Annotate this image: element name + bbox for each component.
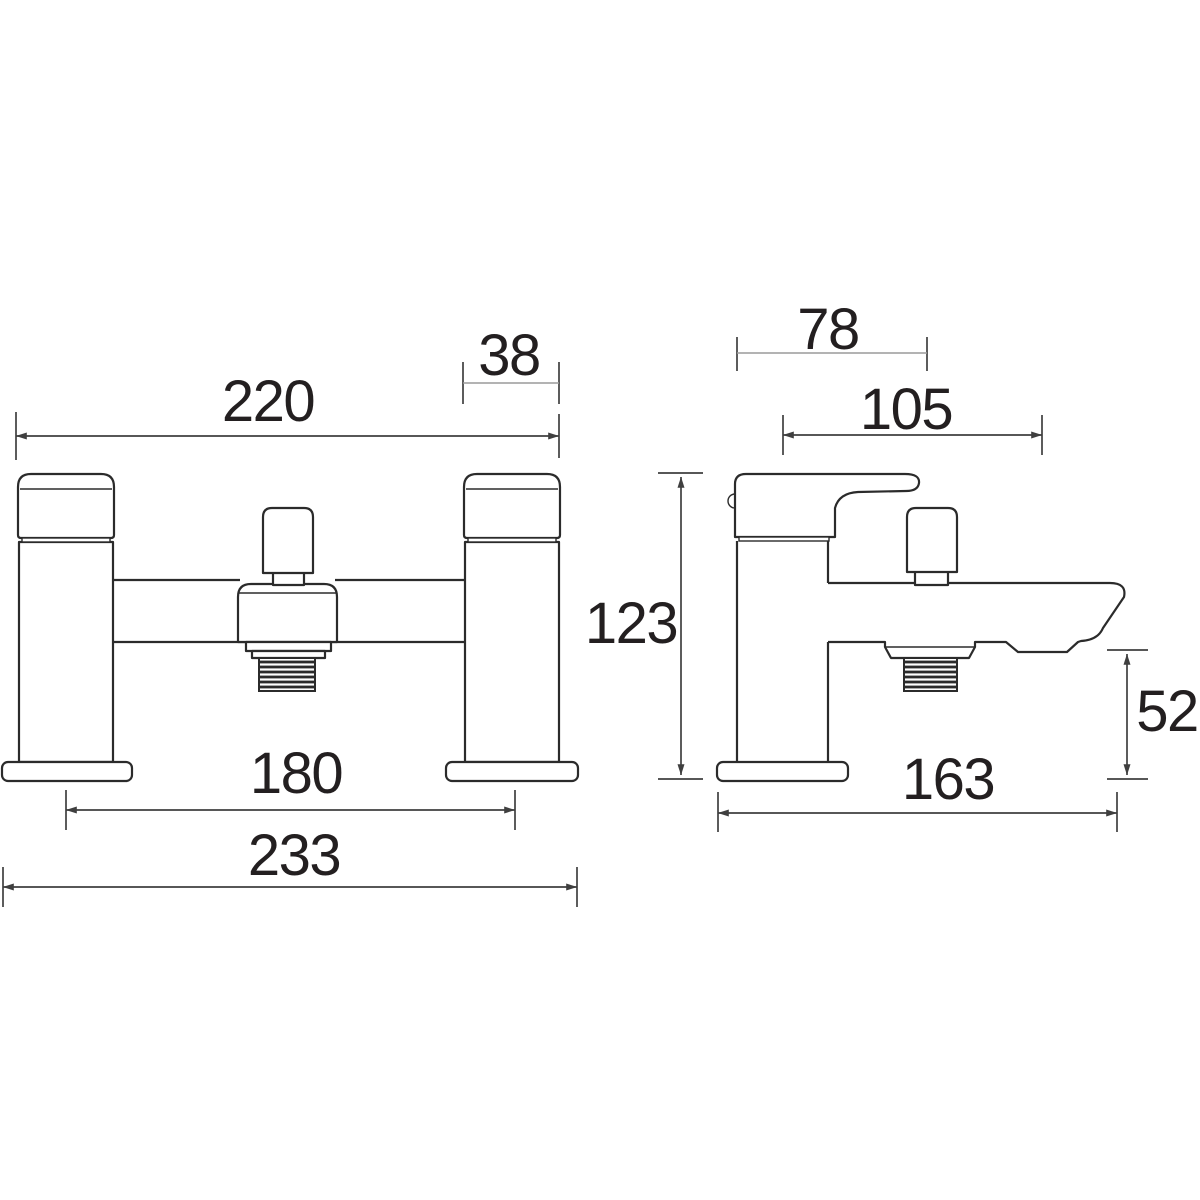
dim-label-handle-width: 38 bbox=[478, 323, 540, 388]
side-base-flange bbox=[717, 762, 848, 781]
dim-label-outlet-to-base: 52 bbox=[1136, 679, 1198, 744]
side-handle-lip bbox=[739, 537, 829, 541]
dimension-drawing: 220 38 180 233 78 105 123 bbox=[0, 0, 1200, 1200]
side-threaded-outlet bbox=[904, 658, 957, 691]
front-right-pillar bbox=[465, 542, 559, 762]
dim-label-inlet-centres: 180 bbox=[250, 741, 342, 806]
front-left-handle-lip bbox=[22, 538, 110, 542]
front-right-handle bbox=[464, 474, 560, 538]
side-dimensions: 78 105 123 52 163 bbox=[585, 297, 1198, 832]
front-left-handle bbox=[18, 474, 114, 538]
front-outlet-flange-lower bbox=[252, 651, 325, 658]
side-handle-lever bbox=[735, 474, 919, 537]
front-left-base-flange bbox=[2, 762, 132, 781]
technical-drawing-canvas: 220 38 180 233 78 105 123 bbox=[0, 0, 1200, 1200]
dim-label-handle-depth: 78 bbox=[797, 297, 859, 362]
dim-label-overall-height: 123 bbox=[585, 591, 677, 656]
front-left-pillar bbox=[19, 542, 113, 762]
front-right-handle-lip bbox=[468, 538, 556, 542]
front-view bbox=[2, 474, 578, 781]
dim-label-base-overall-width: 233 bbox=[248, 823, 340, 888]
front-threaded-outlet bbox=[259, 658, 315, 691]
front-outlet-flange-upper bbox=[246, 642, 331, 651]
side-diverter-knob bbox=[907, 508, 957, 572]
dim-label-overall-depth: 163 bbox=[902, 747, 994, 812]
side-spout bbox=[828, 583, 1124, 658]
front-right-base-flange bbox=[446, 762, 578, 781]
dim-label-spout-projection: 105 bbox=[860, 377, 952, 442]
front-diverter-knob bbox=[263, 508, 313, 573]
side-body-column bbox=[737, 541, 828, 762]
side-view bbox=[717, 474, 1124, 781]
dim-label-overall-width: 220 bbox=[222, 369, 314, 434]
